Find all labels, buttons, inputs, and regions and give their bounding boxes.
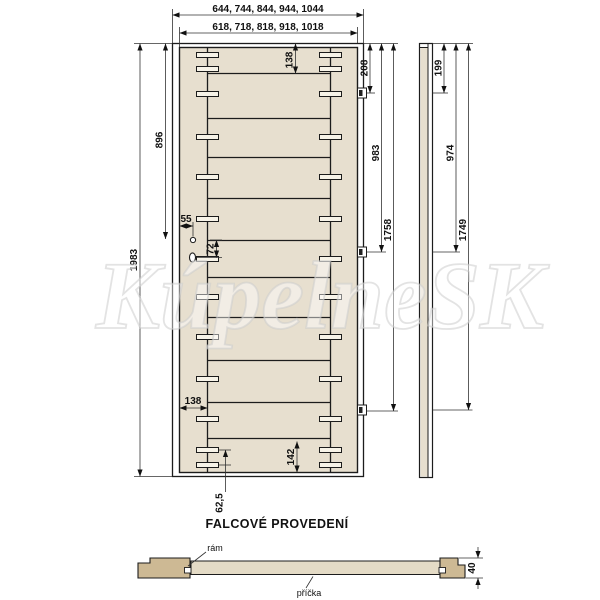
hinge-front-pin [359, 90, 363, 96]
drawing-canvas: 644, 744, 844, 944, 1044 618, 718, 818, … [0, 0, 600, 600]
dim-bottom-rail: 142 [286, 448, 297, 465]
dowel-mark-left [197, 217, 219, 222]
dowel-mark-right [320, 53, 342, 58]
dowel-mark-right [320, 377, 342, 382]
section-frame-left [138, 558, 190, 578]
section-groove-left [185, 568, 192, 574]
dowel-mark-left [197, 417, 219, 422]
dowel-mark-right [320, 92, 342, 97]
dowel-mark-left [197, 53, 219, 58]
dowel-mark-right [320, 175, 342, 180]
dowel-mark-left [197, 135, 219, 140]
dowel-mark-left [197, 377, 219, 382]
watermark-text: KúpelneSK [95, 242, 550, 349]
dowel-mark-left [197, 175, 219, 180]
dim-handle-offset: 55 [180, 214, 192, 225]
dim-dowel-offset: 62,5 [215, 493, 226, 513]
dowel-mark-right [320, 463, 342, 468]
dim-side-hinge-middle: 974 [446, 144, 457, 161]
dim-side-hinge-top: 199 [434, 59, 445, 76]
dowel-mark-right [320, 417, 342, 422]
dim-leaf-widths: 618, 718, 818, 918, 1018 [212, 22, 324, 33]
dim-hinge-top: 208 [360, 59, 371, 76]
dim-frame-widths: 644, 744, 844, 944, 1044 [212, 4, 324, 15]
dowel-mark-right [320, 135, 342, 140]
dowel-mark-left [197, 448, 219, 453]
dim-hinge-bottom: 1758 [383, 218, 394, 241]
dim-side-hinge-bottom: 1749 [458, 218, 469, 241]
section-title: FALCOVÉ PROVEDENÍ [206, 516, 349, 531]
dowel-mark-left [197, 92, 219, 97]
door-technical-drawing: 644, 744, 844, 944, 1044 618, 718, 818, … [0, 0, 600, 600]
dowel-mark-right [320, 217, 342, 222]
leader-line [306, 577, 313, 589]
dowel-mark-right [320, 448, 342, 453]
dim-thickness: 40 [467, 562, 478, 574]
label-slat: příčka [297, 588, 322, 598]
dim-hinge-middle: 983 [371, 144, 382, 161]
section-slat-panel [191, 561, 449, 575]
section-groove-right [439, 568, 446, 574]
label-frame: rám [207, 543, 223, 553]
hinge-front-pin [359, 407, 363, 413]
dim-top-rail: 138 [285, 51, 296, 68]
dim-stile-width: 138 [185, 396, 202, 407]
dowel-mark-right [320, 67, 342, 72]
dowel-mark-left [197, 463, 219, 468]
dowel-mark-left [197, 67, 219, 72]
dim-handle-height: 896 [155, 131, 166, 148]
